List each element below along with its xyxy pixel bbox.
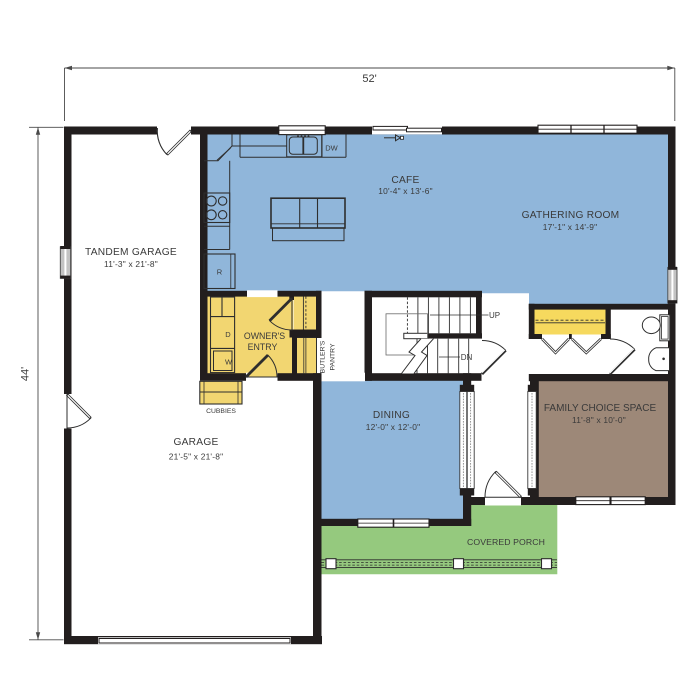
svg-text:D: D [225, 330, 231, 339]
svg-text:GATHERING ROOM: GATHERING ROOM [522, 210, 620, 221]
svg-text:DINING: DINING [373, 410, 410, 421]
svg-text:52': 52' [362, 73, 376, 85]
svg-text:FAMILY CHOICE SPACE: FAMILY CHOICE SPACE [544, 403, 657, 414]
svg-text:44': 44' [20, 367, 32, 381]
svg-text:R: R [217, 268, 223, 277]
svg-text:10'-4" x 13'-6": 10'-4" x 13'-6" [378, 186, 433, 196]
svg-text:CAFE: CAFE [391, 175, 419, 186]
svg-text:GARAGE: GARAGE [173, 437, 218, 448]
svg-text:W: W [225, 358, 233, 367]
svg-text:ENTRY: ENTRY [248, 342, 278, 352]
svg-text:17'-1" x 14'-9": 17'-1" x 14'-9" [543, 222, 598, 232]
svg-text:DN: DN [461, 353, 473, 362]
svg-text:UP: UP [489, 311, 500, 320]
svg-text:TANDEM GARAGE: TANDEM GARAGE [85, 247, 177, 258]
svg-text:OWNER'S: OWNER'S [244, 331, 285, 341]
svg-text:PANTRY: PANTRY [330, 343, 337, 370]
svg-text:11'-8" x 10'-0": 11'-8" x 10'-0" [572, 415, 626, 425]
svg-text:12'-0" x 12'-0": 12'-0" x 12'-0" [366, 422, 421, 432]
svg-text:CUBBIES: CUBBIES [206, 408, 236, 415]
svg-text:DW: DW [325, 144, 338, 153]
svg-text:COVERED PORCH: COVERED PORCH [467, 537, 545, 547]
svg-text:21'-5" x 21'-8": 21'-5" x 21'-8" [169, 452, 224, 462]
svg-text:BUTLER'S: BUTLER'S [320, 340, 327, 373]
svg-text:11'-3" x 21'-8": 11'-3" x 21'-8" [104, 259, 158, 269]
